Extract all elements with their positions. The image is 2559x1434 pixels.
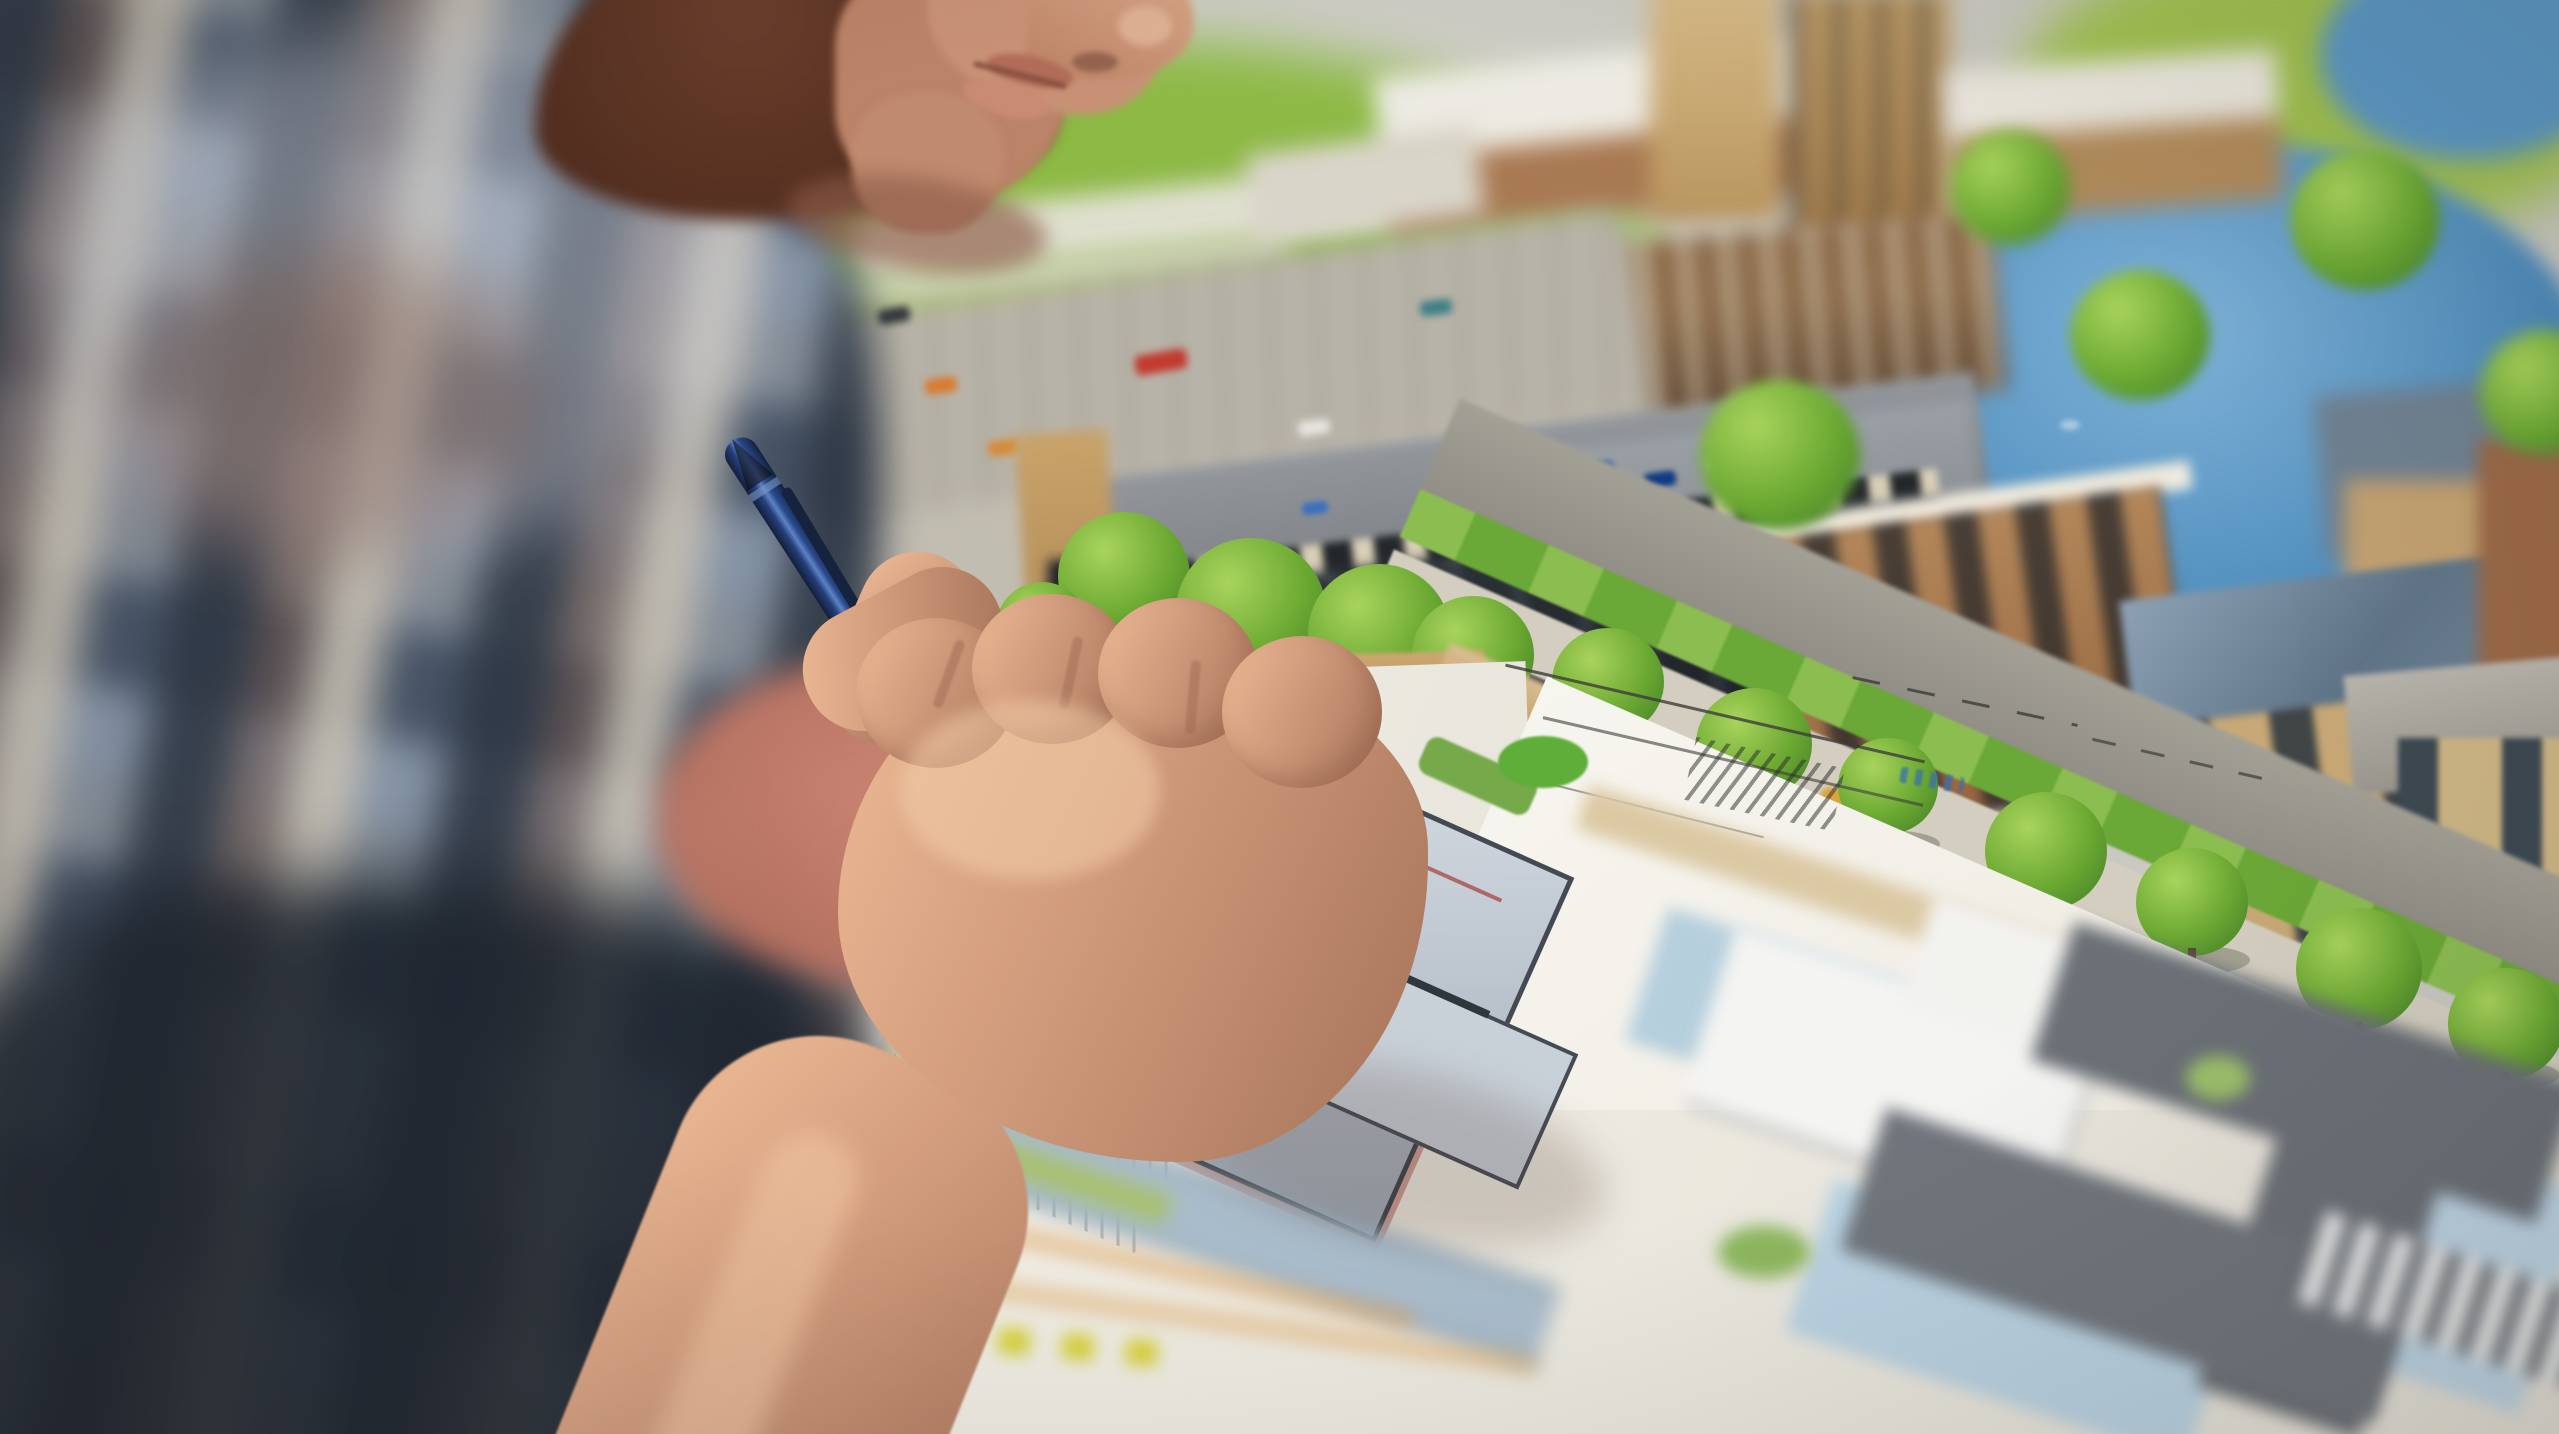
- vignette: [0, 0, 2559, 1434]
- photo-architect-model: [0, 0, 2559, 1434]
